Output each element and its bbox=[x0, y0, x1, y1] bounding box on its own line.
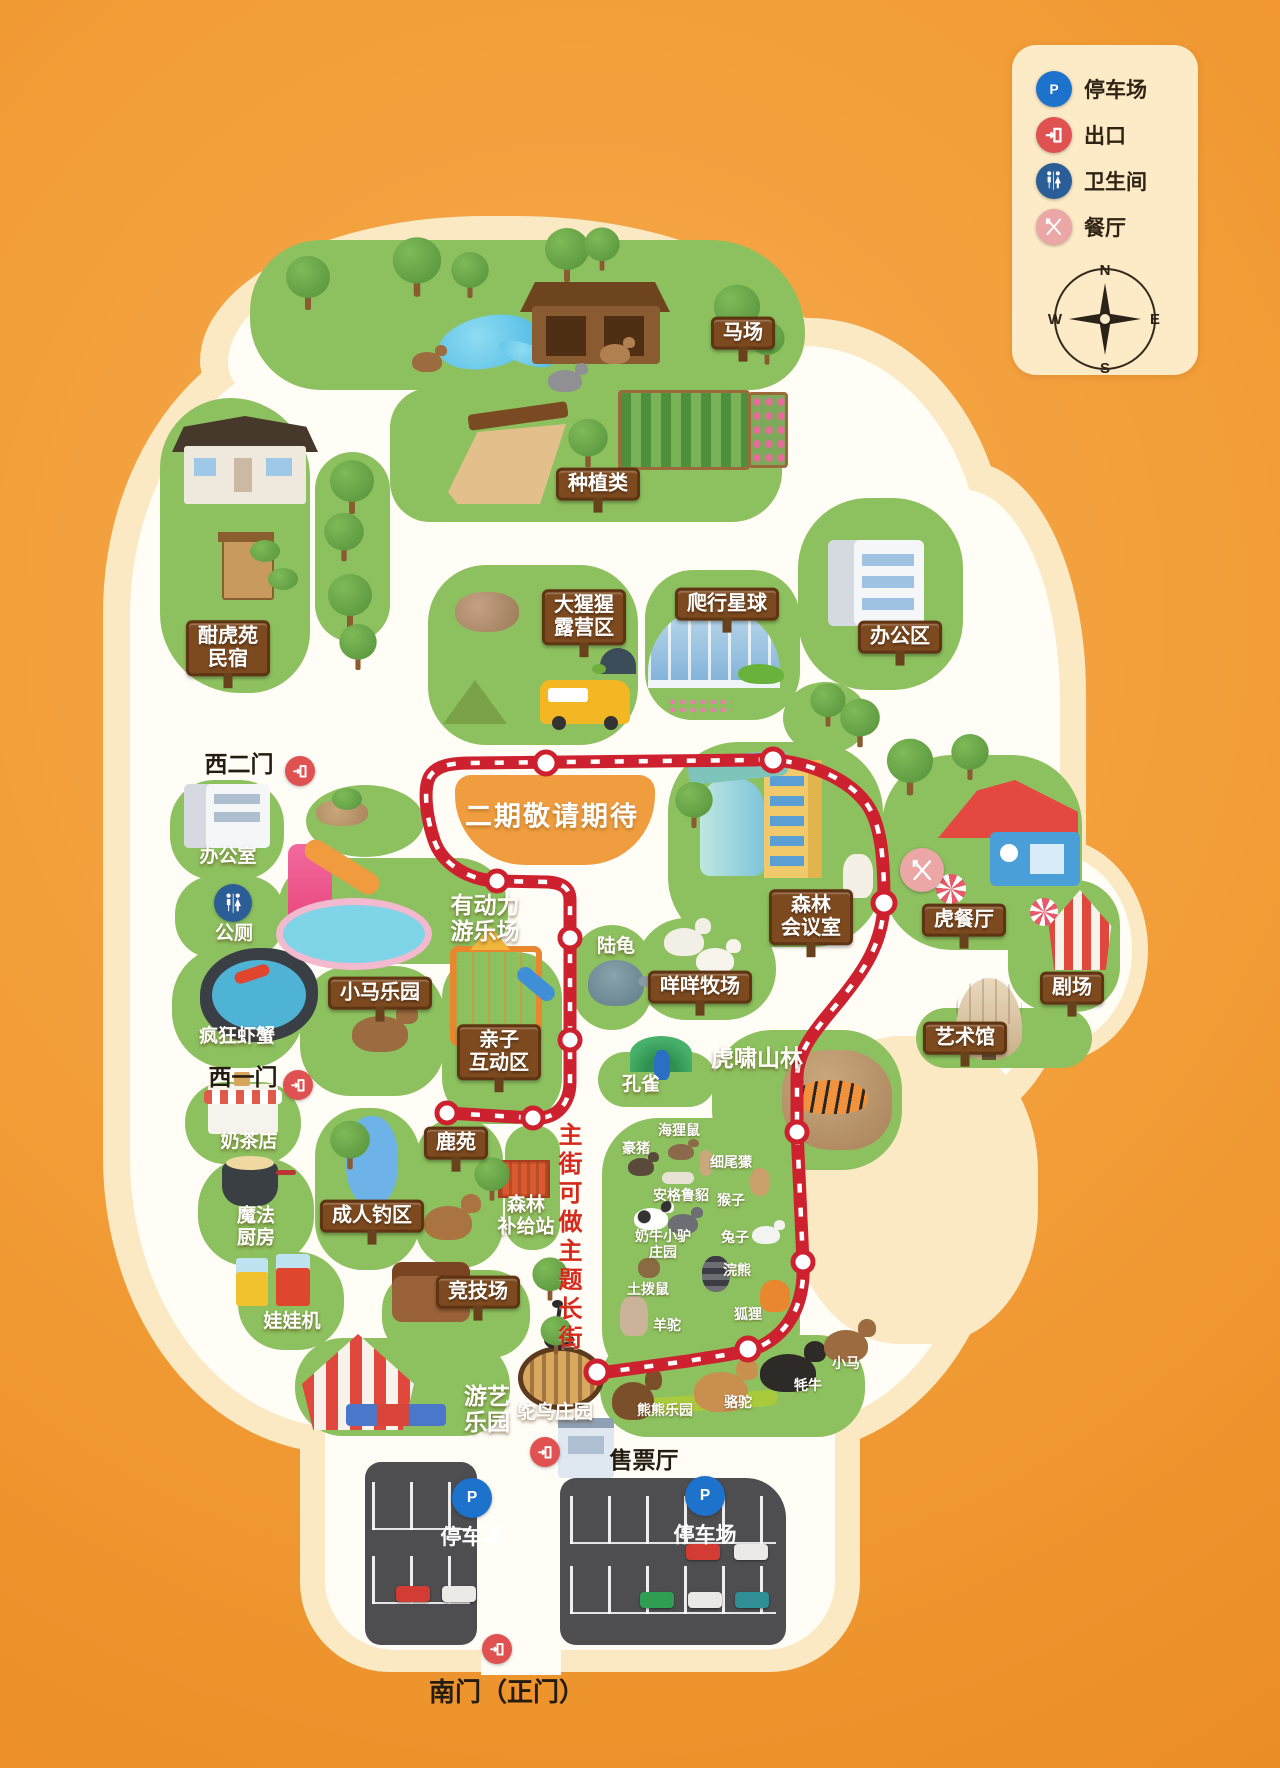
theater-sign: 剧场 bbox=[1040, 972, 1104, 1005]
splash-pool bbox=[276, 898, 432, 970]
restaurant-icon bbox=[1036, 209, 1072, 245]
toilet-icon bbox=[1036, 163, 1072, 199]
nutria bbox=[668, 1144, 694, 1160]
deer bbox=[424, 1206, 472, 1240]
peacock-label: 孔雀 bbox=[622, 1074, 660, 1096]
area-trees-west bbox=[315, 452, 390, 642]
flower-patch bbox=[668, 698, 732, 714]
cow-donkey-label: 奶牛小驴 庄园 bbox=[635, 1229, 691, 1261]
office-building bbox=[828, 540, 924, 626]
pony-label: 小马 bbox=[832, 1356, 860, 1372]
bear-park-label: 熊熊乐园 bbox=[637, 1403, 693, 1419]
parking-icon: P bbox=[1036, 71, 1072, 107]
compass: N E S W bbox=[1045, 259, 1165, 379]
arena-sign: 竞技场 bbox=[436, 1276, 520, 1309]
tiger-restaurant-body bbox=[990, 832, 1080, 886]
yak-label: 牦牛 bbox=[794, 1378, 822, 1394]
parking-right-p-icon: P bbox=[685, 1476, 725, 1516]
legend-label: 卫生间 bbox=[1084, 166, 1147, 196]
public-toilet-icon bbox=[214, 884, 252, 922]
sheep-ranch-sign: 咩咩牧场 bbox=[648, 971, 752, 1004]
west-gate-1-exit-icon bbox=[283, 1070, 313, 1100]
sheep bbox=[664, 928, 704, 956]
legend-row-exit: 出口 bbox=[1036, 117, 1198, 153]
compass-south: S bbox=[1100, 360, 1110, 377]
gorilla-camp-sign: 大猩猩 露营区 bbox=[542, 589, 626, 645]
legend-row-restaurant: 餐厅 bbox=[1036, 209, 1198, 245]
art-museum-sign: 艺术馆 bbox=[923, 1022, 1007, 1055]
flower-rows bbox=[748, 392, 788, 468]
chameleon bbox=[738, 664, 784, 684]
parent-child-sign: 亲子 互动区 bbox=[457, 1024, 541, 1080]
bush bbox=[268, 568, 298, 590]
raccoon-label: 浣熊 bbox=[723, 1263, 751, 1279]
deer-garden-sign: 鹿苑 bbox=[424, 1127, 488, 1160]
parking-right-label: 停车场 bbox=[674, 1524, 737, 1548]
car bbox=[640, 1592, 674, 1608]
groundhog bbox=[638, 1258, 660, 1278]
south-gate-label: 南门（正门） bbox=[429, 1678, 585, 1708]
legend-panel: P停车场出口卫生间餐厅 N E S W bbox=[1012, 45, 1198, 375]
fox bbox=[760, 1280, 790, 1312]
office-area-sign: 办公区 bbox=[858, 621, 942, 654]
meeting-hall-annex bbox=[764, 760, 822, 878]
monkey-label: 猴子 bbox=[717, 1193, 745, 1209]
alpaca bbox=[620, 1296, 648, 1336]
phase2-label: 二期敬请期待 bbox=[465, 802, 639, 833]
area-horse-ranch bbox=[250, 240, 805, 390]
legend-row-parking: P停车场 bbox=[1036, 71, 1198, 107]
claw-machines bbox=[236, 1252, 312, 1308]
porcupine-label: 豪猪 bbox=[622, 1141, 650, 1157]
powered-playground-label: 有动力 游乐场 bbox=[451, 892, 520, 944]
main-street-label: 主街可做主题长街 bbox=[555, 1122, 579, 1354]
car bbox=[688, 1592, 722, 1608]
parking-left-p-icon: P bbox=[452, 1478, 492, 1518]
meeting-hall-tower bbox=[700, 778, 764, 876]
forest-supply-label: 森林 补给站 bbox=[497, 1194, 554, 1237]
alpaca-label: 羊驼 bbox=[653, 1318, 681, 1334]
legend-row-toilet: 卫生间 bbox=[1036, 163, 1198, 199]
ferret bbox=[662, 1172, 694, 1184]
crazy-shrimp-label: 疯狂虾蟹 bbox=[199, 1026, 275, 1048]
ticket-hall-label: 售票厅 bbox=[610, 1447, 679, 1473]
tiger-restaurant-icon bbox=[900, 848, 944, 892]
cow bbox=[634, 1208, 668, 1230]
rabbit bbox=[752, 1226, 780, 1244]
pony-park-sign: 小马乐园 bbox=[328, 977, 432, 1010]
legend-label: 出口 bbox=[1084, 120, 1126, 150]
ticket-exit-icon bbox=[530, 1437, 560, 1467]
tiger-forest-label: 虎啸山林 bbox=[711, 1045, 803, 1071]
claw-machine-label: 娃娃机 bbox=[263, 1311, 320, 1333]
legend-items: P停车场出口卫生间餐厅 bbox=[1012, 45, 1198, 245]
horse-rider bbox=[548, 370, 582, 392]
milk-tea-shop bbox=[208, 1084, 278, 1134]
homestay-sign: 酣虎苑 民宿 bbox=[186, 620, 270, 676]
crop-rows bbox=[618, 390, 750, 470]
ticket-booth bbox=[558, 1418, 614, 1478]
adult-fishing-sign: 成人钓区 bbox=[320, 1200, 424, 1233]
car bbox=[735, 1592, 769, 1608]
horse bbox=[600, 344, 630, 364]
horse-ranch-sign: 马场 bbox=[711, 317, 775, 350]
fox-label: 狐狸 bbox=[734, 1307, 762, 1323]
planting-sign: 种植类 bbox=[556, 468, 640, 501]
car bbox=[734, 1544, 768, 1560]
forest-meeting-sign: 森林 会议室 bbox=[769, 889, 853, 945]
west-gate-2-exit-icon bbox=[285, 756, 315, 786]
car bbox=[442, 1586, 476, 1602]
groundhog-label: 土拨鼠 bbox=[627, 1282, 669, 1298]
camper-van bbox=[540, 680, 630, 724]
west-gate-2-label: 西二门 bbox=[205, 751, 274, 777]
bush bbox=[332, 788, 362, 810]
park-map: PP 马场种植类酣虎苑 民宿大猩猩 露营区爬行星球办公区西二门办公室公厕疯狂虾蟹… bbox=[0, 0, 1280, 1768]
tortoise-label: 陆龟 bbox=[597, 936, 635, 958]
exit-icon bbox=[1036, 117, 1072, 153]
office-room-label: 办公室 bbox=[199, 846, 256, 868]
magic-pot bbox=[222, 1162, 278, 1206]
homestay-house bbox=[184, 446, 306, 504]
ferret-label: 安格鲁貂 bbox=[653, 1188, 709, 1204]
compass-west: W bbox=[1048, 311, 1063, 328]
parking-left-label: 停车场 bbox=[441, 1526, 504, 1550]
mini-train bbox=[346, 1404, 446, 1426]
milk-tea-label: 奶茶店 bbox=[220, 1131, 277, 1153]
rabbit-label: 兔子 bbox=[721, 1230, 749, 1246]
office-room-building bbox=[184, 784, 270, 848]
legend-label: 停车场 bbox=[1084, 74, 1147, 104]
fishing-pond bbox=[346, 1116, 398, 1206]
ostrich-pen bbox=[518, 1346, 604, 1410]
camp-rocks bbox=[455, 592, 519, 632]
meerkat-label: 细尾獴 bbox=[710, 1155, 752, 1171]
reptile-planet-sign: 爬行星球 bbox=[675, 588, 779, 621]
nutria-label: 海狸鼠 bbox=[658, 1123, 700, 1139]
compass-north: N bbox=[1100, 262, 1111, 279]
west-gate-1-label: 西一门 bbox=[209, 1064, 278, 1090]
magic-kitchen-label: 魔法 厨房 bbox=[237, 1205, 275, 1248]
monkey bbox=[750, 1168, 770, 1196]
stable bbox=[532, 306, 660, 364]
bush bbox=[250, 540, 280, 562]
public-toilet-label: 公厕 bbox=[215, 923, 253, 945]
south-gate-exit-icon bbox=[482, 1634, 512, 1664]
porcupine bbox=[628, 1158, 654, 1176]
tiger-restaurant-sign: 虎餐厅 bbox=[922, 904, 1006, 937]
supply-container bbox=[498, 1160, 550, 1198]
amusement-park-label: 游艺 乐园 bbox=[464, 1383, 510, 1435]
legend-label: 餐厅 bbox=[1084, 212, 1126, 242]
horse bbox=[412, 352, 442, 372]
tortoise bbox=[588, 960, 644, 1006]
car bbox=[396, 1586, 430, 1602]
compass-east: E bbox=[1150, 311, 1160, 328]
camel-label: 骆驼 bbox=[724, 1395, 752, 1411]
ostrich-manor-label: 鸵鸟庄园 bbox=[517, 1402, 593, 1424]
